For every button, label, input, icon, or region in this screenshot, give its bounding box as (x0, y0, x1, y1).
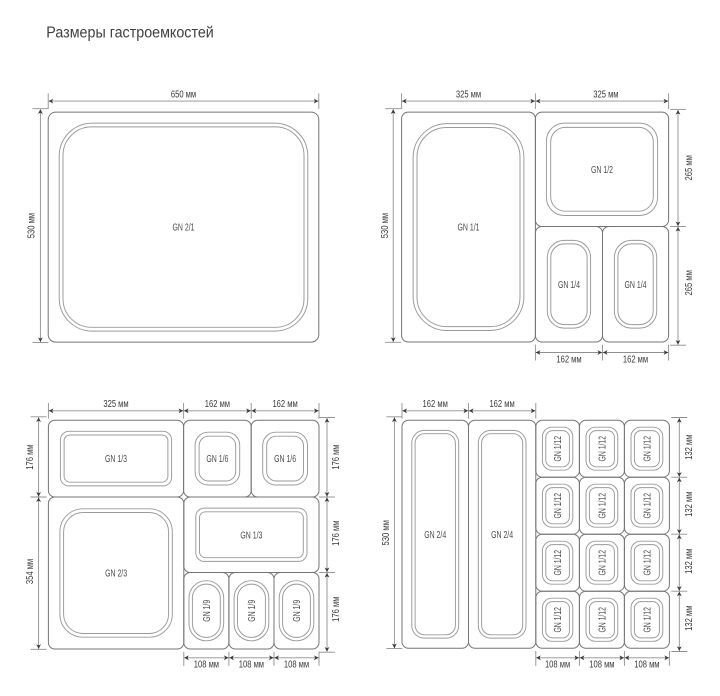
svg-text:162 мм: 162 мм (272, 399, 297, 410)
svg-text:GN 1/12: GN 1/12 (598, 493, 609, 519)
svg-text:GN 1/2: GN 1/2 (591, 165, 613, 176)
svg-text:325 мм: 325 мм (456, 89, 481, 100)
svg-text:176 мм: 176 мм (331, 444, 342, 469)
svg-text:GN 1/12: GN 1/12 (553, 550, 564, 576)
svg-text:GN 1/6: GN 1/6 (274, 454, 296, 465)
svg-text:108 мм: 108 мм (589, 660, 614, 671)
svg-text:GN 1/12: GN 1/12 (553, 436, 564, 462)
svg-text:132 мм: 132 мм (684, 605, 695, 630)
svg-text:GN 1/12: GN 1/12 (643, 436, 654, 462)
svg-text:108 мм: 108 мм (284, 660, 309, 671)
svg-text:GN 1/4: GN 1/4 (625, 280, 647, 291)
svg-text:GN 1/12: GN 1/12 (643, 607, 654, 633)
svg-text:176 мм: 176 мм (331, 520, 342, 545)
svg-text:132 мм: 132 мм (684, 548, 695, 573)
svg-text:162 мм: 162 мм (556, 354, 581, 365)
svg-text:162 мм: 162 мм (423, 399, 448, 410)
svg-text:530 мм: 530 мм (380, 213, 391, 238)
svg-text:GN 1/9: GN 1/9 (202, 600, 213, 622)
svg-text:354 мм: 354 мм (25, 559, 36, 584)
svg-text:108 мм: 108 мм (239, 660, 264, 671)
svg-text:GN 1/12: GN 1/12 (553, 607, 564, 633)
svg-text:325 мм: 325 мм (593, 89, 618, 100)
svg-text:GN 1/3: GN 1/3 (105, 454, 127, 465)
svg-text:GN 2/4: GN 2/4 (491, 530, 513, 541)
svg-text:GN 1/12: GN 1/12 (643, 550, 654, 576)
svg-text:162 мм: 162 мм (623, 354, 648, 365)
svg-text:108 мм: 108 мм (194, 660, 219, 671)
svg-text:162 мм: 162 мм (205, 399, 230, 410)
svg-text:530 мм: 530 мм (27, 213, 38, 238)
svg-text:176 мм: 176 мм (25, 444, 36, 469)
svg-text:GN 1/12: GN 1/12 (598, 436, 609, 462)
svg-text:GN 2/4: GN 2/4 (424, 530, 446, 541)
svg-text:GN 1/1: GN 1/1 (458, 223, 480, 234)
svg-text:108 мм: 108 мм (545, 660, 570, 671)
svg-text:GN 1/6: GN 1/6 (206, 454, 228, 465)
svg-text:265 мм: 265 мм (684, 270, 695, 295)
svg-text:132 мм: 132 мм (684, 491, 695, 516)
svg-text:176 мм: 176 мм (331, 596, 342, 621)
svg-text:GN 1/9: GN 1/9 (292, 600, 303, 622)
svg-text:GN 2/1: GN 2/1 (173, 222, 195, 233)
svg-text:GN 1/12: GN 1/12 (598, 607, 609, 633)
svg-text:530 мм: 530 мм (381, 520, 392, 545)
svg-text:265 мм: 265 мм (684, 155, 695, 180)
svg-text:GN 1/12: GN 1/12 (643, 493, 654, 519)
svg-text:GN 1/9: GN 1/9 (247, 600, 258, 622)
svg-text:132 мм: 132 мм (684, 434, 695, 459)
svg-text:GN 1/4: GN 1/4 (558, 280, 580, 291)
svg-text:650 мм: 650 мм (171, 89, 196, 100)
svg-text:GN 1/12: GN 1/12 (598, 550, 609, 576)
svg-text:GN 2/3: GN 2/3 (105, 569, 127, 580)
svg-text:Размеры гастроемкостей: Размеры гастроемкостей (46, 25, 214, 42)
svg-text:108 мм: 108 мм (634, 660, 659, 671)
svg-text:GN 1/12: GN 1/12 (553, 493, 564, 519)
svg-text:GN 1/3: GN 1/3 (240, 530, 262, 541)
svg-text:162 мм: 162 мм (489, 399, 514, 410)
svg-text:325 мм: 325 мм (103, 399, 128, 410)
